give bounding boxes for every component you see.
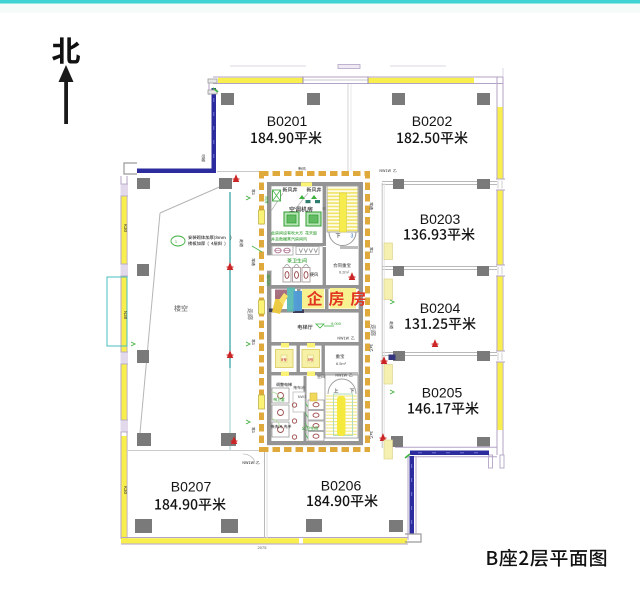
- svg-text:B0204: B0204: [420, 300, 461, 316]
- svg-text:B0207: B0207: [171, 479, 212, 495]
- svg-text:9.2m²: 9.2m²: [339, 270, 350, 275]
- svg-text:B0201: B0201: [267, 113, 308, 129]
- svg-text:B0203: B0203: [420, 211, 461, 227]
- svg-text:9.000: 9.000: [331, 321, 342, 326]
- svg-text:N38: N38: [123, 311, 128, 320]
- svg-text:B0205: B0205: [422, 385, 463, 401]
- svg-text:8.5m²: 8.5m²: [336, 361, 347, 366]
- svg-text:2075: 2075: [258, 545, 268, 550]
- svg-text:NW3: NW3: [298, 395, 306, 399]
- svg-text:B0206: B0206: [321, 478, 362, 494]
- svg-text:K30: K30: [123, 224, 128, 233]
- svg-text:3: 3: [351, 234, 354, 240]
- svg-text:B0202: B0202: [412, 113, 453, 129]
- svg-text:K30: K30: [123, 486, 128, 495]
